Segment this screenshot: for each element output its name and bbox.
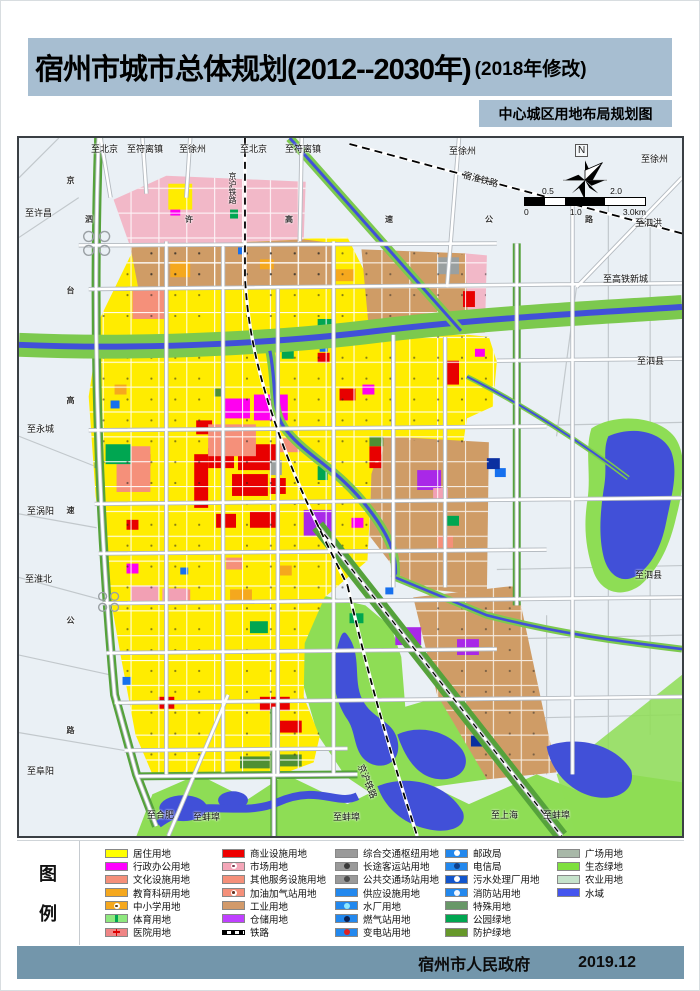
map-label: 至许昌 (25, 206, 52, 219)
legend-swatch (222, 849, 245, 858)
legend-item: 公园绿地 (445, 914, 540, 924)
legend-item: 工业用地 (222, 901, 326, 911)
legend-swatch (335, 888, 358, 897)
legend-item: 居住用地 (105, 848, 190, 858)
page-title: 宿州市城市总体规划(2012--2030年) (35, 46, 471, 88)
legend: 图 例 居住用地 行政办公用地 文化设施用地 教育科研用地 中小学用地 体育用地… (17, 840, 684, 945)
legend-item: 污水处理厂用地 (445, 874, 540, 884)
legend-title-char: 图 (39, 860, 57, 886)
legend-swatch (222, 862, 245, 871)
legend-column-2: 商业设施用地 市场用地 其他服务设施用地 加油加气站用地 工业用地 仓储用地 铁… (222, 848, 326, 937)
map-label: 至泗县 (635, 568, 662, 581)
map-label: 至合肥 (147, 808, 174, 821)
legend-swatch (335, 875, 358, 884)
legend-item: 邮政局 (445, 848, 540, 858)
map-label: 至徐州 (449, 144, 476, 157)
legend-item: 中小学用地 (105, 901, 190, 911)
legend-item: 变电站用地 (335, 927, 439, 937)
subtitle-bar: 中心城区用地布局规划图 (479, 100, 672, 127)
map-label: 至永城 (27, 422, 54, 435)
footer-date: 2019.12 (578, 954, 636, 972)
scale-tick: 2.0 (610, 186, 622, 196)
legend-item: 水域 (557, 888, 623, 898)
legend-swatch (222, 901, 245, 910)
railway-label: 京沪铁路 (227, 172, 238, 204)
legend-swatch (222, 914, 245, 923)
legend-item: 消防站用地 (445, 888, 540, 898)
map-label: 至泗县 (637, 354, 664, 367)
map-label: 至高铁新城 (603, 272, 648, 285)
legend-swatch (222, 888, 245, 897)
legend-swatch (335, 928, 358, 937)
legend-swatch (445, 901, 468, 910)
legend-title-char: 例 (39, 900, 57, 926)
map-subtitle: 中心城区用地布局规划图 (499, 104, 653, 124)
page-title-suffix: (2018年修改) (475, 54, 587, 81)
legend-item: 公共交通场站用地 (335, 874, 439, 884)
legend-item: 其他服务设施用地 (222, 874, 326, 884)
legend-swatch (445, 849, 468, 858)
legend-swatch (557, 888, 580, 897)
legend-swatch (445, 914, 468, 923)
map-label: 至徐州 (641, 152, 668, 165)
legend-column-4: 邮政局 电信局 污水处理厂用地 消防站用地 特殊用地 公园绿地 防护绿地 (445, 848, 540, 937)
legend-item: 长途客运站用地 (335, 861, 439, 871)
footer-organization: 宿州市人民政府 (418, 951, 530, 975)
legend-item: 铁路 (222, 927, 326, 937)
legend-swatch (445, 888, 468, 897)
legend-swatch (557, 849, 580, 858)
legend-item: 电信局 (445, 861, 540, 871)
legend-swatch-railway (222, 930, 245, 935)
legend-item: 教育科研用地 (105, 888, 190, 898)
map-label: 至蚌埠 (543, 808, 570, 821)
legend-swatch (105, 888, 128, 897)
map-label: 至符离镇 (127, 142, 163, 155)
footer-bar: 宿州市人民政府 2019.12 (17, 946, 684, 979)
map-label: 至蚌埠 (333, 810, 360, 823)
legend-item: 仓储用地 (222, 914, 326, 924)
land-use-map: 至北京 至符离镇 至徐州 至北京 至符离镇 至徐州 至徐州 至许昌 至永城 至涡… (17, 136, 684, 838)
legend-swatch (222, 875, 245, 884)
legend-item: 文化设施用地 (105, 874, 190, 884)
legend-swatch-school (105, 901, 128, 910)
legend-item: 市场用地 (222, 861, 326, 871)
legend-item: 综合交通枢纽用地 (335, 848, 439, 858)
legend-item: 燃气站用地 (335, 914, 439, 924)
legend-swatch (335, 849, 358, 858)
map-label: 至涡阳 (27, 504, 54, 517)
legend-item: 医院用地 (105, 927, 190, 937)
legend-item: 加油加气站用地 (222, 888, 326, 898)
scale-tick: 1.0 (570, 207, 582, 217)
legend-swatch (445, 928, 468, 937)
legend-item: 农业用地 (557, 874, 623, 884)
legend-swatch-hospital (105, 928, 128, 937)
road-name: 京台高速公路 (65, 176, 76, 836)
map-label: 至徐州 (179, 142, 206, 155)
legend-swatch (105, 849, 128, 858)
map-label: 至符离镇 (285, 142, 321, 155)
legend-swatch-sports (105, 914, 128, 923)
map-label: 至阜阳 (27, 764, 54, 777)
legend-item: 水厂用地 (335, 901, 439, 911)
legend-swatch (557, 875, 580, 884)
legend-swatch (105, 862, 128, 871)
legend-swatch (335, 914, 358, 923)
scale-tick: 0 (524, 207, 529, 217)
map-label: 至淮北 (25, 572, 52, 585)
map-label: 至蚌埠 (193, 810, 220, 823)
legend-title-box: 图 例 (17, 841, 80, 945)
legend-swatch (445, 862, 468, 871)
legend-item: 生态绿地 (557, 861, 623, 871)
legend-item: 防护绿地 (445, 927, 540, 937)
legend-item: 广场用地 (557, 848, 623, 858)
legend-item: 商业设施用地 (222, 848, 326, 858)
legend-column-1: 居住用地 行政办公用地 文化设施用地 教育科研用地 中小学用地 体育用地 医院用… (105, 848, 190, 937)
legend-item: 供应设施用地 (335, 888, 439, 898)
legend-swatch (335, 901, 358, 910)
map-label: 至上海 (491, 808, 518, 821)
legend-swatch (445, 875, 468, 884)
legend-swatch (557, 862, 580, 871)
scale-tick: 0.5 (542, 186, 554, 196)
legend-column-5: 广场用地 生态绿地 农业用地 水域 (557, 848, 623, 898)
map-label: 至北京 (240, 142, 267, 155)
legend-item: 体育用地 (105, 914, 190, 924)
legend-column-3: 综合交通枢纽用地 长途客运站用地 公共交通场站用地 供应设施用地 水厂用地 燃气… (335, 848, 439, 937)
scale-bar-graphic (524, 197, 646, 206)
title-bar: 宿州市城市总体规划(2012--2030年) (2018年修改) (28, 38, 672, 96)
map-drawing (19, 138, 682, 836)
scale-bar: 0.5 2.0 0 1.0 3.0km (524, 186, 646, 217)
scale-tick: 3.0km (623, 207, 646, 217)
map-label: 至北京 (91, 142, 118, 155)
legend-item: 特殊用地 (445, 901, 540, 911)
legend-swatch (335, 862, 358, 871)
legend-swatch (105, 875, 128, 884)
legend-item: 行政办公用地 (105, 861, 190, 871)
